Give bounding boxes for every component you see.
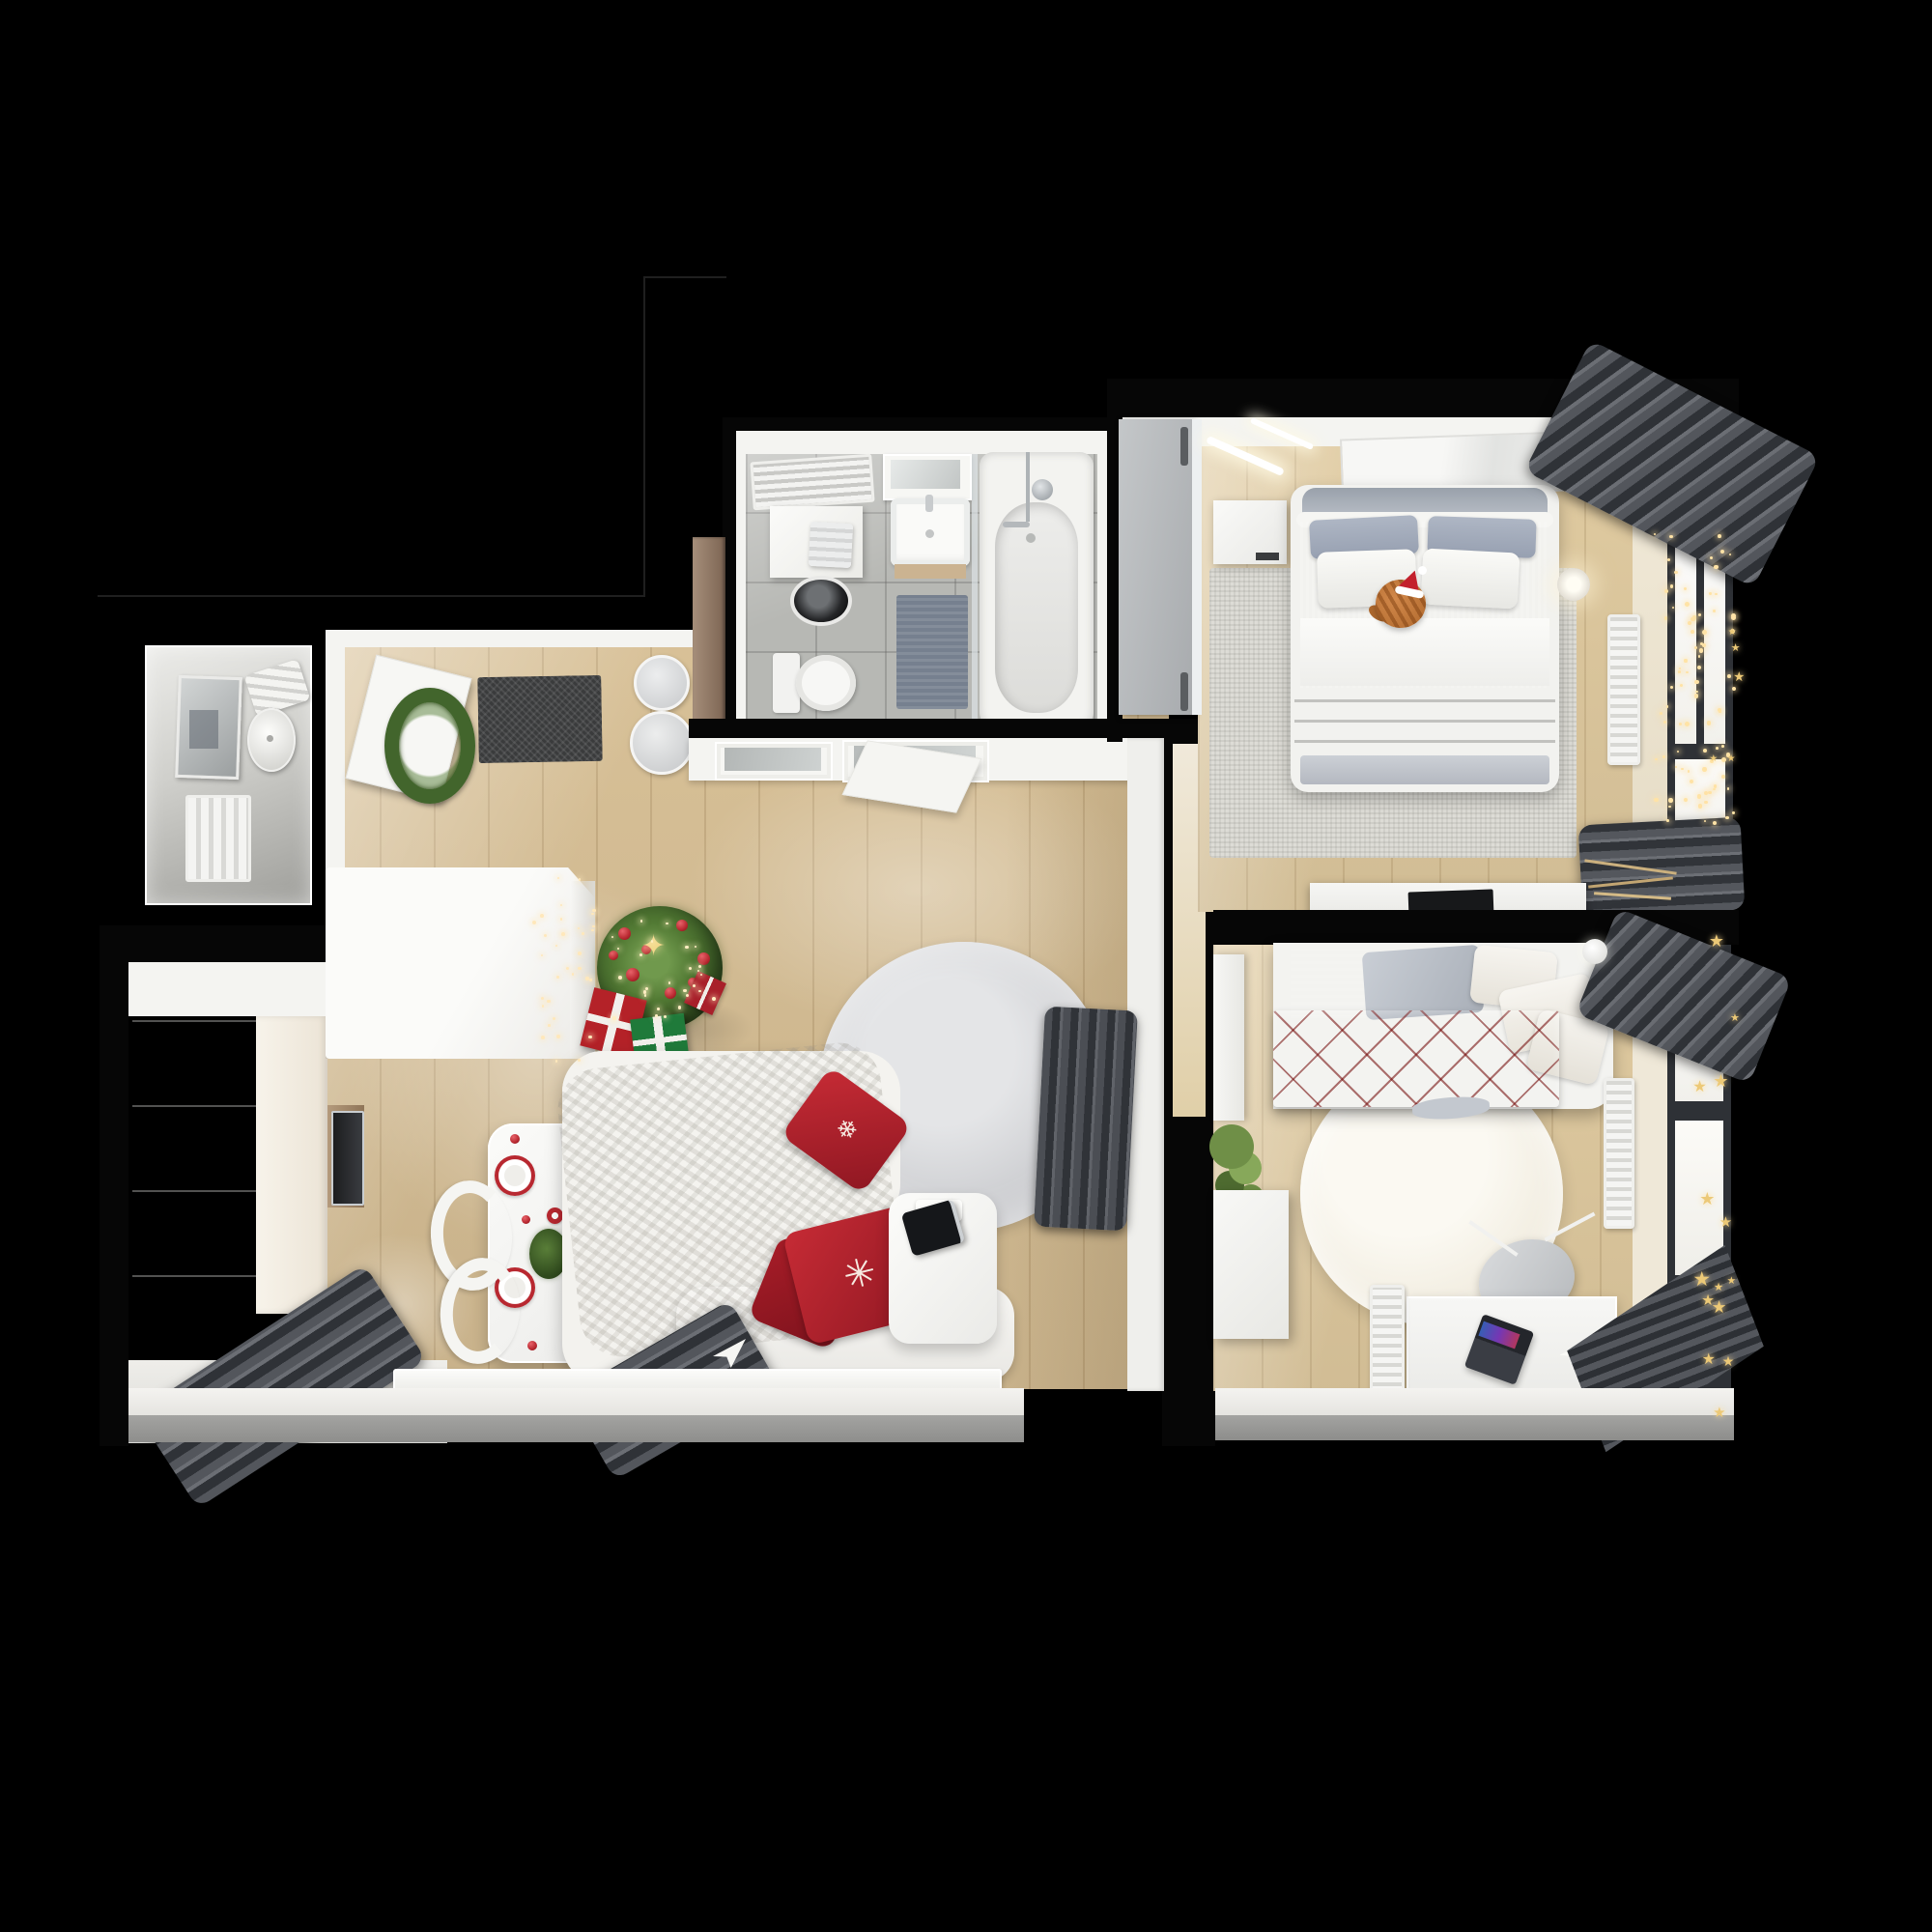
fairy-light-dot [1718, 534, 1721, 538]
fairy-light-dot [1685, 602, 1690, 607]
shower-head [1032, 479, 1053, 500]
washer-drum [790, 576, 852, 626]
fairy-light-dot [700, 974, 702, 976]
star-light: ★ [1712, 1300, 1727, 1318]
fairy-light-dot [1708, 791, 1711, 794]
star-light: ★ [1728, 628, 1737, 638]
shower-pipe [1026, 452, 1030, 522]
bathtub-drain [1026, 533, 1036, 543]
fairy-light-dot [1669, 535, 1673, 539]
fairy-light-dot [591, 929, 593, 931]
fairy-light-dot [1699, 648, 1704, 653]
star-light: ★ [1692, 1079, 1707, 1094]
fairy-light-dot [1681, 768, 1683, 770]
fairy-light-dot [1694, 694, 1698, 697]
fairy-light-dot [1694, 680, 1698, 684]
fairy-light-dot [1670, 686, 1673, 689]
fairy-light-dot [1727, 674, 1731, 678]
bed1-white-sheet [1300, 618, 1549, 686]
tree-bauble [676, 920, 688, 931]
wardrobe-band [1213, 954, 1244, 1121]
star-light: ★ [1699, 1191, 1715, 1208]
hallway-left-wall [326, 630, 345, 871]
bathtub-basin [995, 502, 1078, 713]
star-light: ★ [1722, 1355, 1735, 1369]
star-light: ★ [1702, 1351, 1716, 1367]
fairy-light-dot [555, 945, 557, 947]
fairy-light-dot [666, 923, 668, 925]
tree-star-topper: ✦ [641, 929, 666, 963]
fairy-light-dot [1707, 721, 1711, 724]
fairy-light-dot [1684, 659, 1687, 662]
bedroom2-sill-white [1215, 1388, 1734, 1417]
fairy-light-dot [561, 932, 565, 936]
fairy-light-dot [693, 984, 696, 987]
doormat [477, 675, 603, 763]
star-light: ★ [1727, 754, 1736, 764]
fairy-light-dot [1690, 630, 1694, 634]
kitchen-counter-run [132, 1016, 256, 1360]
fairy-light-dot [1666, 705, 1668, 707]
fairy-light-dot [1716, 747, 1719, 750]
star-light: ★ [1727, 1276, 1736, 1287]
bath-mat [896, 595, 968, 709]
fairy-light-dot [1654, 798, 1658, 802]
fairy-light-dot [639, 953, 642, 956]
fairy-light-dot [1670, 584, 1673, 587]
fairy-light-dot [1725, 816, 1728, 819]
table-bauble [510, 1134, 520, 1144]
star-light: ★ [1713, 1073, 1728, 1091]
fairy-light-dot [612, 1016, 616, 1020]
star-light: ★ [1692, 1269, 1711, 1290]
fairy-light-dot [541, 997, 544, 1000]
santa-hat-pom [1418, 566, 1427, 575]
transom-glass [724, 748, 821, 771]
fairy-light-dot [685, 946, 688, 949]
fairy-light-dot [1721, 775, 1725, 779]
kitchen-tall-cabinets [256, 1016, 327, 1314]
table-bauble [522, 1215, 530, 1224]
fairy-light-dot [1721, 757, 1726, 762]
bedroom1-radiator [1607, 614, 1640, 765]
fairy-light-dot [617, 948, 619, 950]
wardrobe-vent [1256, 553, 1279, 560]
wc-radiator [185, 795, 251, 882]
exterior-outline-line [98, 595, 645, 597]
red-cup [547, 1207, 563, 1224]
fairy-light-dot [542, 1005, 545, 1008]
floor-plan-render: ✦ ❄ ✳ ✳ [0, 0, 1932, 1932]
sink-faucet [925, 495, 933, 512]
glass-partition [326, 867, 595, 1059]
fairy-light-dot [668, 981, 670, 983]
fairy-light-dot [1704, 820, 1706, 822]
fairy-light-dot [618, 976, 622, 980]
fairy-light-dot [1655, 758, 1657, 760]
fairy-light-dot [1702, 767, 1706, 771]
bed2-red-quilt [1273, 1010, 1559, 1107]
star-light: ★ [1731, 642, 1741, 653]
tree-bauble [609, 951, 618, 960]
balcony-sill-white [128, 1388, 1024, 1417]
tree-bauble [665, 987, 676, 999]
bedroom2-radiator [1370, 1285, 1405, 1395]
fairy-light-dot [555, 1060, 557, 1062]
living-top-wall [689, 719, 1164, 740]
wc-mirror-reflection [189, 710, 218, 749]
towel-ladder-radiator [750, 454, 874, 511]
fairy-light-dot [1674, 571, 1678, 575]
fairy-light-dot [1709, 592, 1711, 594]
fairy-light-dot [644, 994, 646, 996]
fairy-light-dot [1666, 819, 1668, 821]
fairy-light-dot [1685, 722, 1690, 726]
fairy-light-dot [1731, 613, 1736, 618]
kitchen-walls [99, 925, 327, 964]
fairy-light-dot [1695, 691, 1698, 694]
fairy-light-dot [1714, 565, 1719, 570]
star-light: ★ [1733, 671, 1745, 685]
fairy-light-dot [1697, 794, 1702, 799]
fairy-light-dot [541, 1036, 545, 1039]
fairy-light-dot [1729, 554, 1731, 555]
star-light: ★ [1709, 933, 1724, 951]
fairy-light-dot [1732, 811, 1734, 813]
hall-stool [630, 711, 694, 775]
fairy-light-dot [657, 1008, 660, 1010]
bathroom-door-wood [693, 537, 725, 724]
bed2-dark-mattress [1291, 949, 1372, 1018]
fairy-light-dot [1727, 787, 1729, 789]
wc-sink-drain [267, 735, 273, 742]
christmas-wreath [384, 688, 475, 804]
white-pillow [1421, 548, 1520, 609]
dinner-plate [495, 1155, 535, 1196]
bedside-lamp [1582, 939, 1607, 964]
star-light: ★ [1709, 754, 1718, 764]
hallway-top-wall [326, 630, 724, 647]
exterior-outline-line [643, 278, 645, 597]
bedroom2-strip-gray [1215, 1415, 1734, 1440]
fairy-light-dot [698, 990, 700, 992]
table-bauble [527, 1341, 537, 1350]
bedroom1-door-frame [1192, 419, 1202, 715]
wall-lamp [1557, 568, 1590, 601]
fairy-light-dot [1698, 655, 1701, 658]
bedroom2-radiator [1604, 1078, 1634, 1229]
fairy-light-dot [643, 990, 646, 993]
fairy-light-dot [585, 977, 588, 980]
fairy-light-dot [1715, 593, 1717, 595]
exterior-outline-line [643, 276, 726, 278]
fairy-light-dot [1721, 745, 1724, 748]
fairy-light-dot [1710, 556, 1713, 559]
fairy-light-dot [1684, 798, 1688, 802]
curtain-bunch-balcony-door [1034, 1007, 1138, 1232]
towel-on-washer [809, 522, 853, 568]
door-handle [1180, 672, 1188, 711]
plant [1209, 1124, 1254, 1169]
fairy-light-dot [712, 997, 716, 1001]
fairy-light-dot [1698, 804, 1702, 808]
fairy-light-dot [1692, 615, 1696, 619]
fairy-light-dot [1678, 670, 1681, 673]
balcony-strip-gray [128, 1415, 1024, 1442]
sink-drain [925, 529, 934, 538]
tree-bauble [618, 927, 631, 940]
fairy-light-dot [1668, 798, 1672, 802]
tree-bauble [697, 952, 710, 965]
fairy-light-dot [1702, 643, 1706, 647]
star-light: ★ [1714, 1282, 1723, 1293]
fairy-light-dot [591, 913, 593, 915]
fairy-light-dot [589, 979, 591, 980]
fairy-light-dot [1667, 558, 1670, 561]
fairy-light-dot [532, 921, 536, 924]
star-light: ★ [1730, 1012, 1740, 1023]
dresser-cube [1213, 1190, 1289, 1339]
fairy-light-dot [1732, 687, 1736, 691]
vanity-wood-base [895, 564, 966, 579]
fairy-light-dot [1713, 821, 1717, 825]
fairy-light-dot [1698, 613, 1701, 616]
fairy-light-dot [1654, 533, 1656, 535]
toilet-bowl [796, 655, 856, 711]
door-handle [1180, 427, 1188, 466]
shower-valve [1003, 522, 1030, 527]
curtain-pile-bedroom1 [1578, 817, 1746, 919]
bed2-gray-duvet [1362, 945, 1485, 1020]
fairy-light-dot [560, 904, 562, 906]
hall-stool [634, 655, 690, 711]
star-light: ★ [1719, 1215, 1732, 1230]
kitchen-left-wall [99, 925, 128, 1446]
fairy-light-dot [582, 932, 584, 935]
bed1-red-blanket [1294, 682, 1555, 757]
star-light: ★ [1713, 1406, 1725, 1421]
bathroom-mirror-glass [891, 460, 960, 489]
bed1-folded-throw [1300, 755, 1549, 784]
fairy-light-dot [578, 967, 582, 971]
tree-bauble [626, 968, 639, 981]
fairy-light-dot [1672, 607, 1674, 609]
built-in-oven [331, 1111, 364, 1206]
fairy-light-dot [578, 1059, 581, 1062]
shower-glass-screen [972, 454, 978, 724]
fairy-light-dot [588, 1036, 591, 1038]
